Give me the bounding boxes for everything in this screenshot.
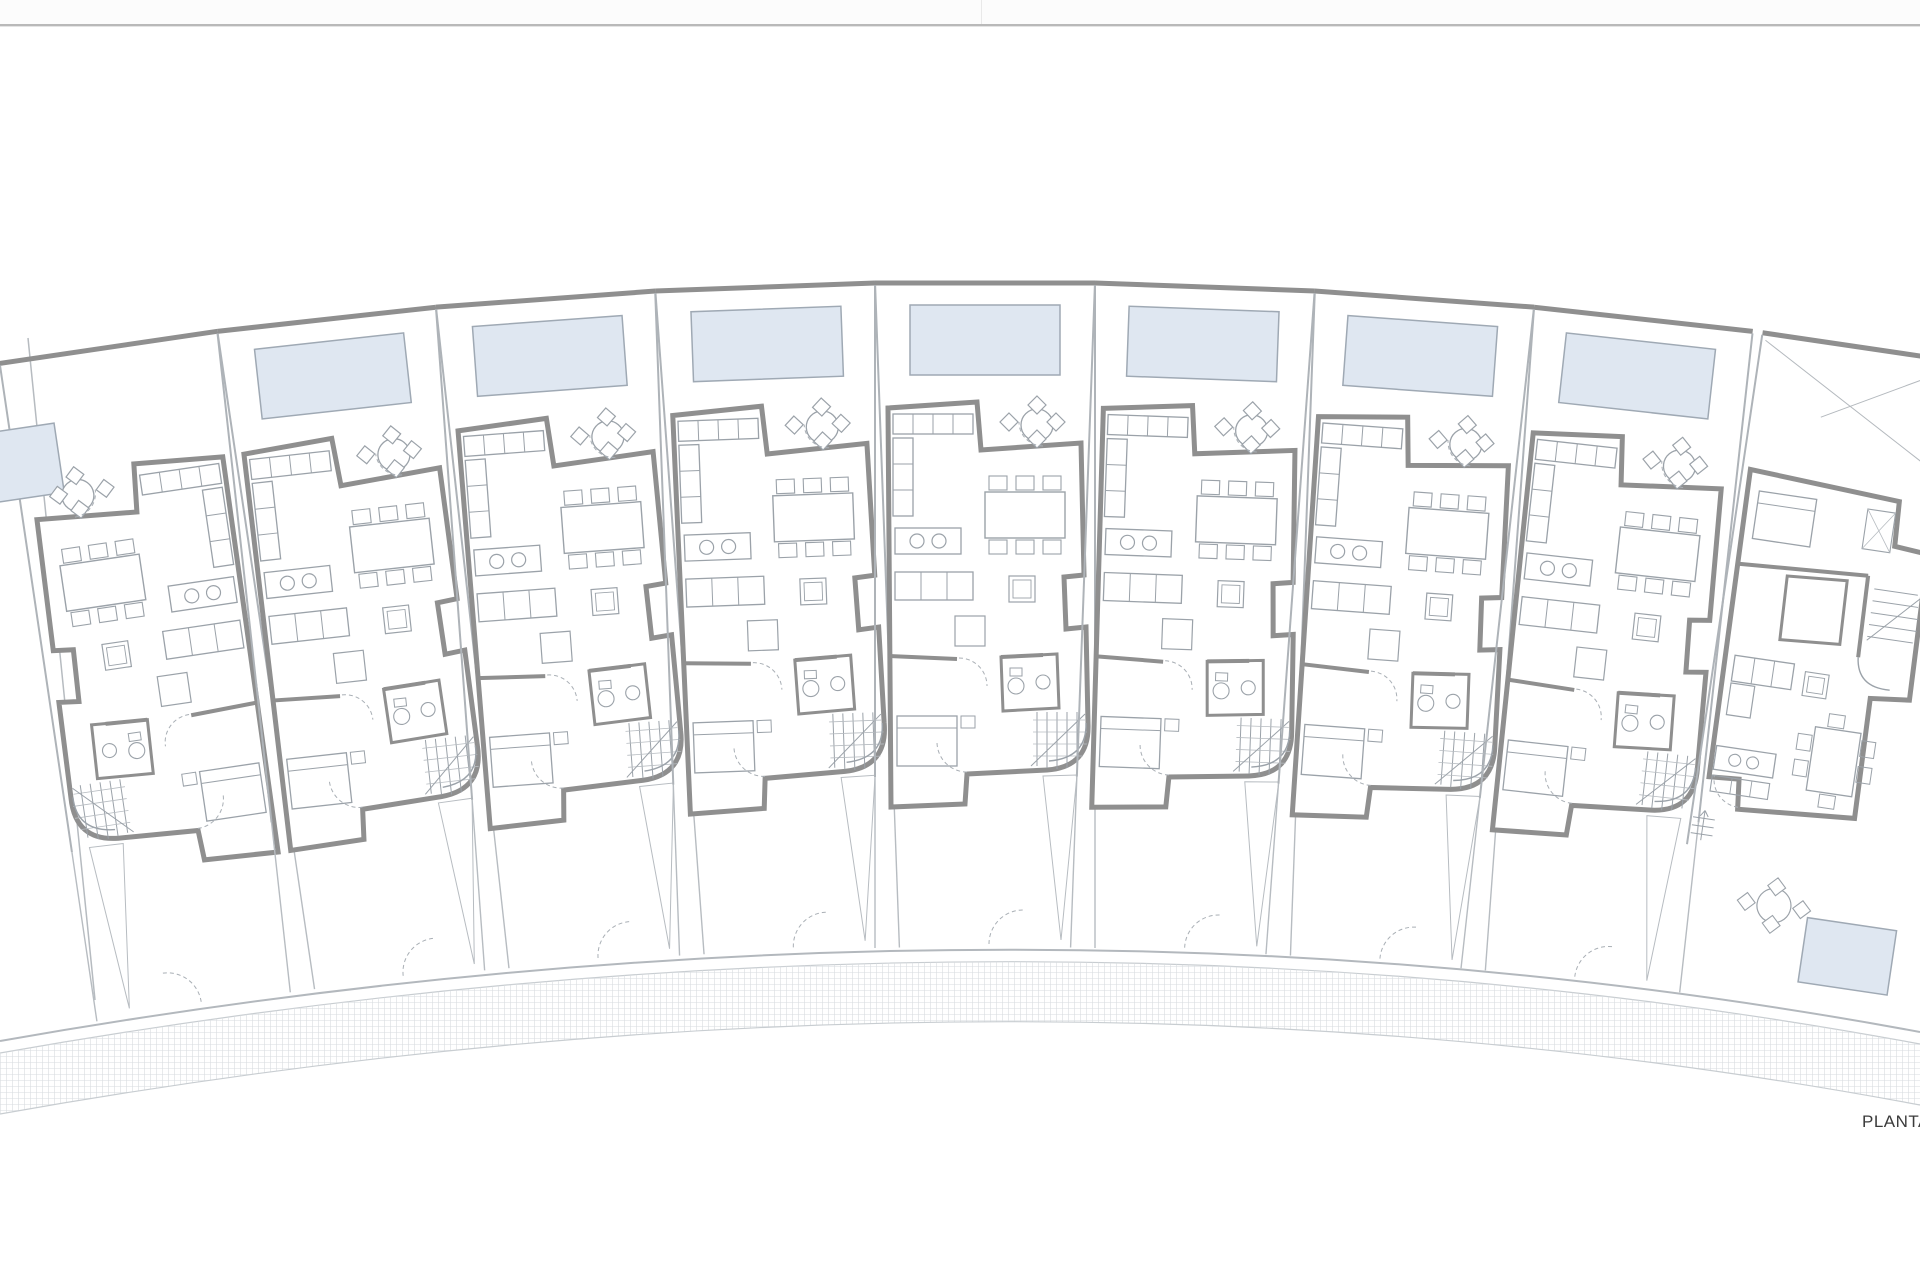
unit-6-pool [1127, 306, 1279, 381]
page: { "page": { "label": { "text": "PLANTA",… [0, 0, 1920, 1280]
floor-plan-drawing [0, 0, 1920, 1280]
unit-3-pool [472, 316, 627, 397]
unit-8-pool [1559, 333, 1716, 419]
unit-2 [217, 307, 509, 992]
unit-2-pool [254, 333, 411, 419]
unit-9 [1669, 333, 1920, 995]
unit-7-pool [1343, 316, 1498, 397]
unit-5-pool [910, 305, 1060, 375]
unit-6 [1071, 283, 1315, 956]
unit-4-pool [691, 306, 843, 381]
plan-title: PLANTA [1862, 1112, 1920, 1132]
floor-plan [0, 0, 1920, 1280]
unit-7 [1266, 291, 1534, 970]
unit-9-pool [1798, 918, 1897, 995]
unit-8 [1461, 307, 1753, 992]
unit-3 [436, 291, 704, 970]
unit-5 [875, 283, 1095, 948]
unit-4 [655, 283, 899, 956]
unit-1 [0, 331, 315, 1036]
